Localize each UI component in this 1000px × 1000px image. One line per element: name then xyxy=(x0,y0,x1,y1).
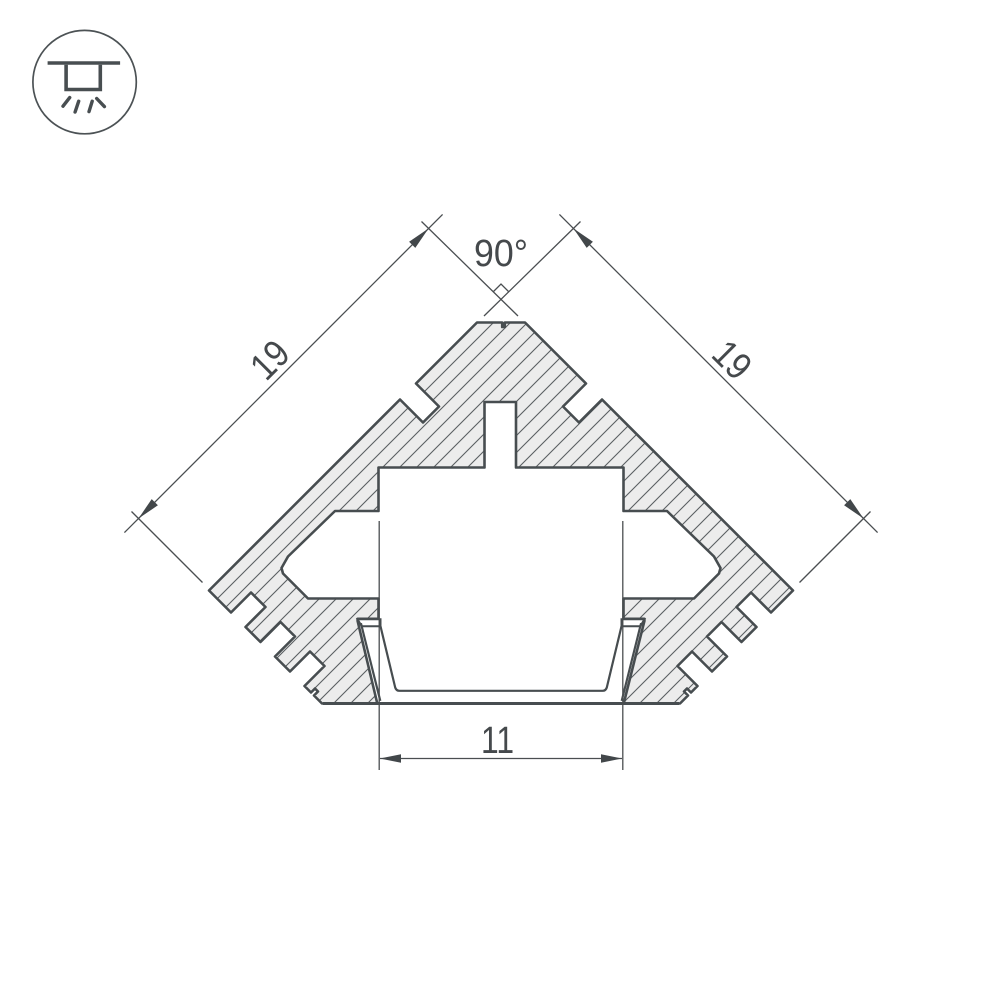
svg-text:11: 11 xyxy=(481,720,514,762)
svg-text:90°: 90° xyxy=(474,233,528,275)
